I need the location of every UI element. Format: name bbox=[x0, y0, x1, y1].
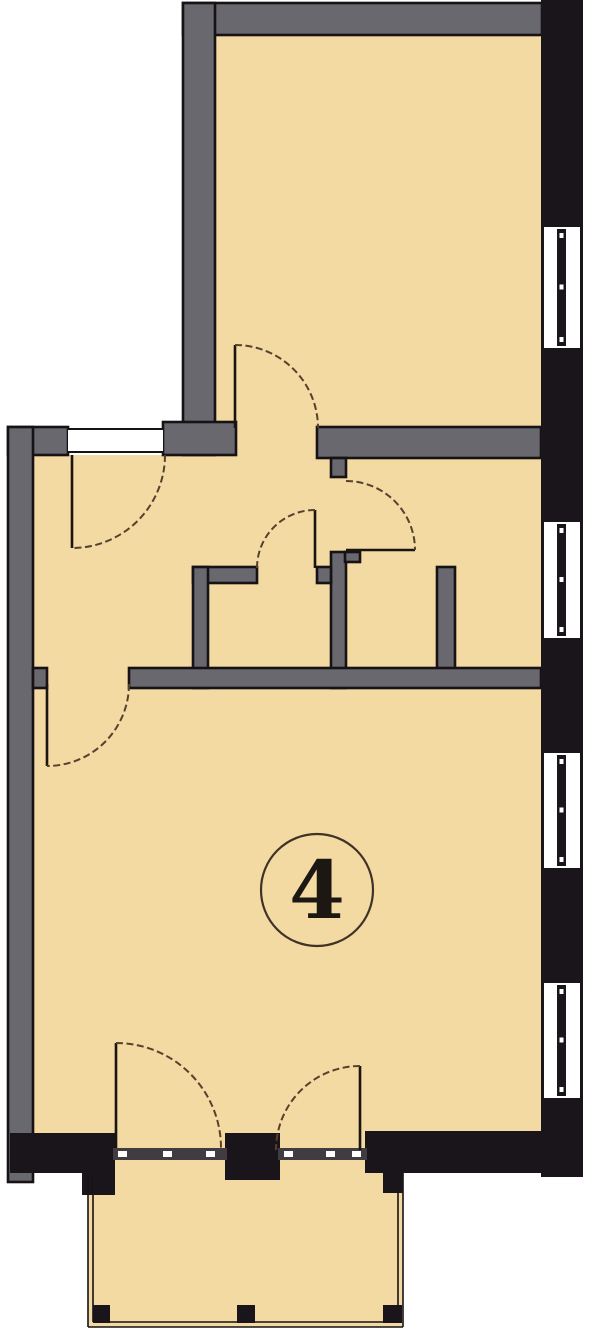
wall-segment bbox=[183, 3, 215, 455]
main-rooms-floor bbox=[33, 455, 541, 1173]
wall-segment bbox=[129, 668, 541, 688]
window-2-glazing-tick bbox=[560, 577, 564, 582]
wall-segment bbox=[331, 458, 346, 477]
wall-segment bbox=[317, 567, 331, 583]
wall-segment bbox=[437, 567, 455, 683]
window-2-glazing-tick bbox=[560, 627, 564, 632]
balcony-floor bbox=[88, 1173, 403, 1327]
threshold-dash bbox=[352, 1151, 361, 1157]
room-number-label: 4 bbox=[289, 843, 345, 937]
entrance-opening bbox=[68, 429, 163, 452]
balcony-post bbox=[383, 1172, 403, 1193]
threshold-dash bbox=[284, 1151, 293, 1157]
window-4-glazing-tick bbox=[560, 989, 564, 994]
balcony-post bbox=[383, 1305, 402, 1323]
window-3-glazing-tick bbox=[560, 808, 564, 813]
wall-segment bbox=[33, 668, 47, 688]
window-2-glazing-tick bbox=[560, 528, 564, 533]
wall-segment bbox=[163, 422, 236, 455]
window-3-glazing-tick bbox=[560, 759, 564, 764]
exterior-wall-segment bbox=[365, 1131, 541, 1173]
wall-segment bbox=[345, 552, 360, 562]
threshold-dash bbox=[163, 1151, 172, 1157]
wall-segment bbox=[183, 3, 542, 35]
window-1-glazing-tick bbox=[560, 337, 564, 342]
threshold-dash bbox=[118, 1151, 127, 1157]
upper-room-floor bbox=[215, 35, 545, 458]
balcony-post bbox=[93, 1177, 110, 1195]
window-3-glazing-tick bbox=[560, 857, 564, 862]
balcony-post bbox=[93, 1305, 110, 1323]
floor-plan-page: 4 bbox=[0, 0, 606, 1342]
exterior-wall-segment bbox=[10, 1133, 115, 1173]
window-4-glazing-tick bbox=[560, 1087, 564, 1092]
wall-segment bbox=[8, 427, 33, 1182]
threshold-dash bbox=[326, 1151, 335, 1157]
window-1-glazing-tick bbox=[560, 285, 564, 290]
floor-plan-drawing: 4 bbox=[0, 0, 606, 1342]
balcony-post bbox=[237, 1305, 255, 1323]
exterior-wall-segment bbox=[225, 1133, 280, 1180]
window-4-glazing-tick bbox=[560, 1038, 564, 1043]
threshold-dash bbox=[206, 1151, 215, 1157]
window-1-glazing-tick bbox=[560, 233, 564, 238]
wall-segment bbox=[317, 427, 541, 458]
